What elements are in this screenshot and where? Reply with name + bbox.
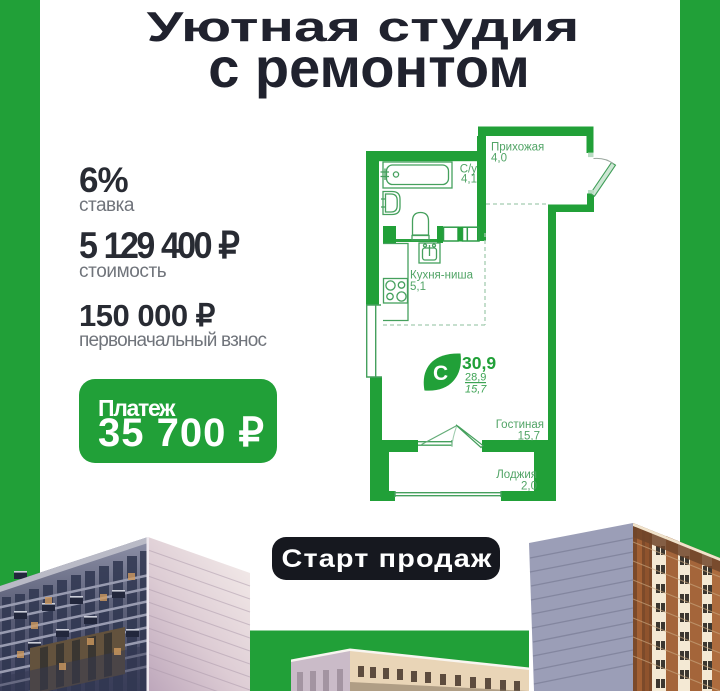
svg-text:Гостиная: Гостиная	[496, 419, 544, 431]
svg-text:4,1: 4,1	[461, 174, 477, 186]
svg-text:5,1: 5,1	[410, 281, 426, 293]
svg-text:Кухня-ниша: Кухня-ниша	[410, 270, 474, 282]
svg-text:28,9: 28,9	[465, 372, 486, 384]
svg-text:15,7: 15,7	[518, 431, 540, 443]
svg-text:2,0: 2,0	[521, 481, 537, 493]
svg-text:С: С	[433, 362, 448, 385]
svg-text:4,0: 4,0	[491, 153, 507, 165]
svg-text:15,7: 15,7	[465, 384, 487, 396]
svg-text:Лоджия: Лоджия	[496, 469, 537, 481]
svg-text:30,9: 30,9	[462, 353, 496, 373]
